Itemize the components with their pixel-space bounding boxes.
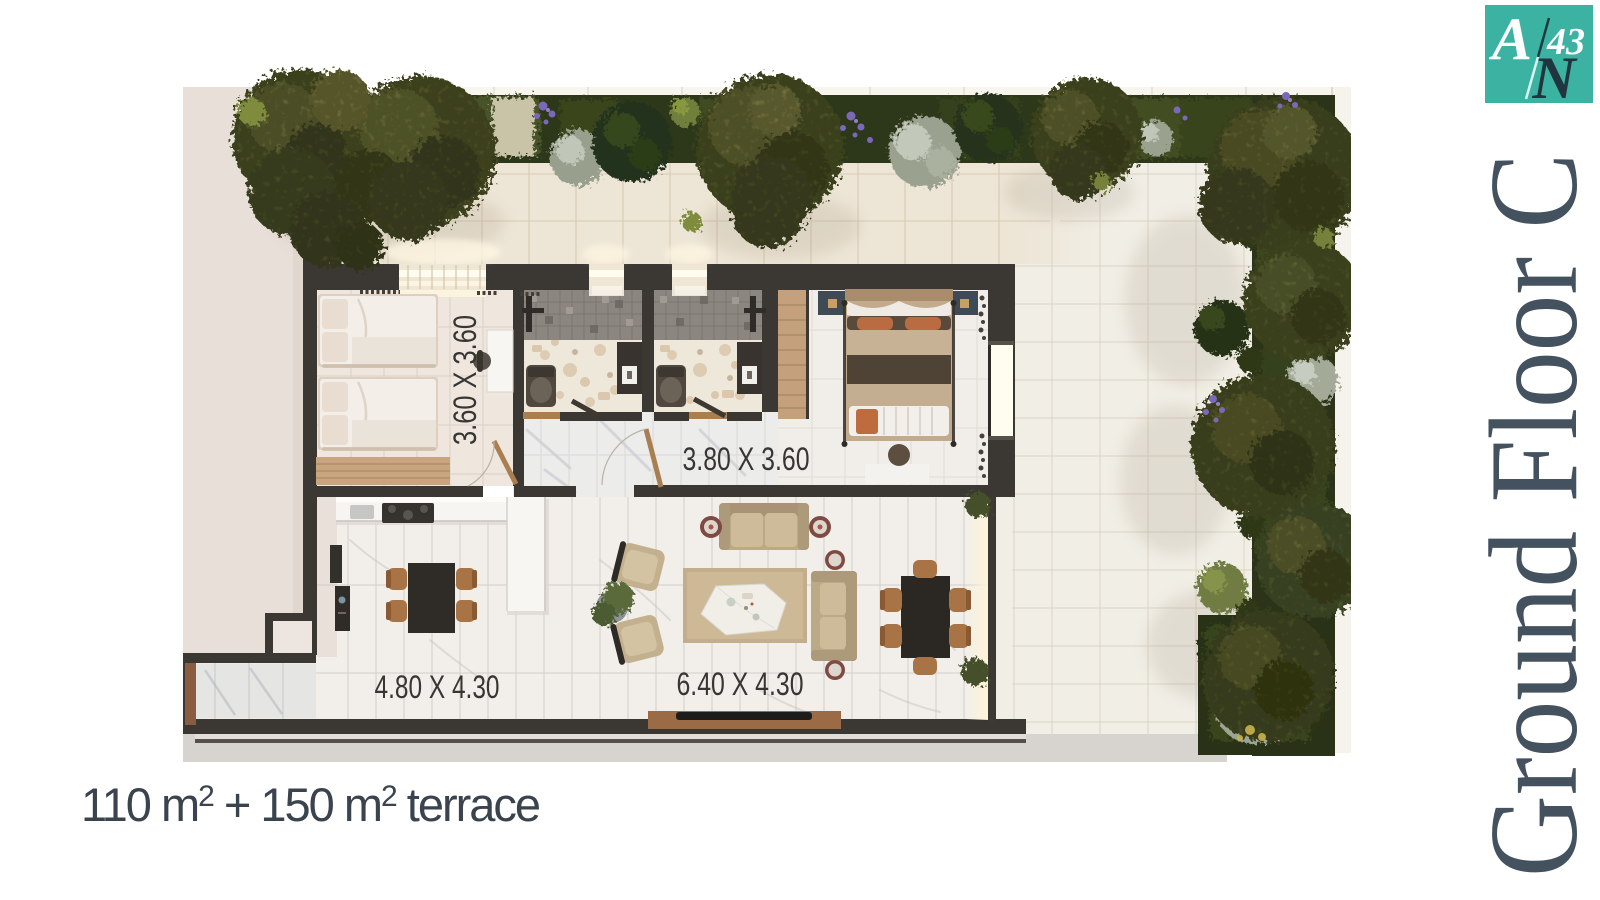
svg-text:Ground Floor C: Ground Floor C: [1465, 153, 1600, 877]
svg-text:A: A: [1488, 6, 1532, 72]
svg-text:3.60 X 3.60: 3.60 X 3.60: [447, 315, 483, 445]
svg-text:3.80 X 3.60: 3.80 X 3.60: [683, 441, 810, 477]
svg-text:4.80 X 4.30: 4.80 X 4.30: [375, 669, 500, 705]
svg-text:110 m2 + 150 m2 terrace: 110 m2 + 150 m2 terrace: [81, 778, 540, 831]
svg-text:N: N: [1531, 45, 1578, 111]
svg-text:6.40 X 4.30: 6.40 X 4.30: [677, 666, 804, 702]
